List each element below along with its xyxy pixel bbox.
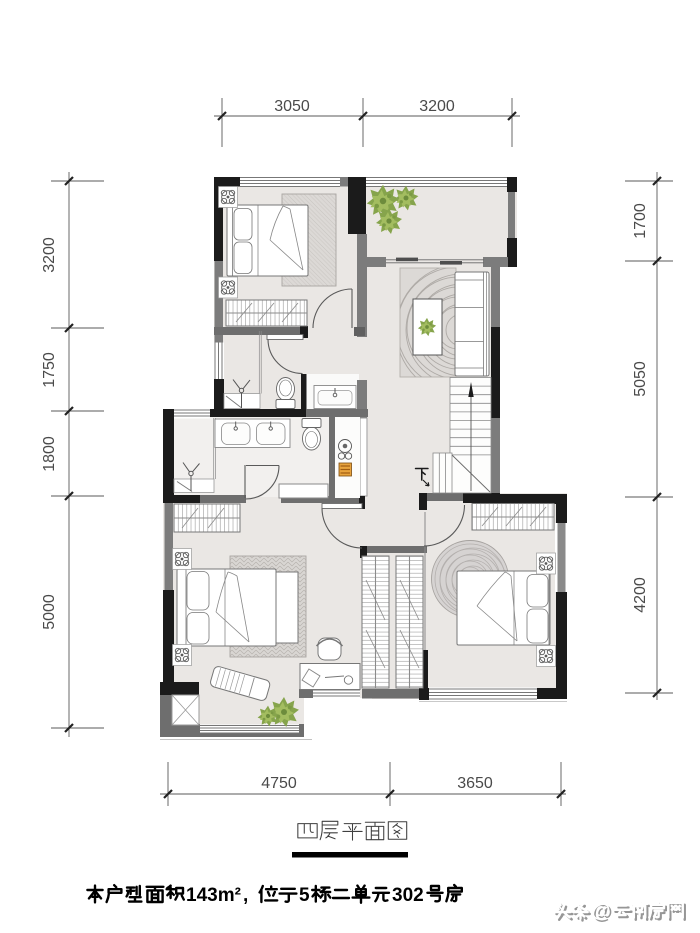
svg-text:3050: 3050 [274,98,310,115]
svg-text:3200: 3200 [41,237,58,273]
svg-text:3200: 3200 [419,98,455,115]
svg-text:3650: 3650 [457,775,493,792]
svg-text:143m²: 143m² [186,885,241,906]
svg-text:5050: 5050 [632,361,649,397]
svg-text:1750: 1750 [41,352,58,388]
svg-text:302: 302 [392,885,424,906]
svg-text:@: @ [591,900,611,922]
svg-text:5: 5 [299,885,310,906]
svg-text:,: , [243,885,248,906]
svg-text:4200: 4200 [632,577,649,613]
svg-text:1800: 1800 [41,436,58,472]
svg-text:4750: 4750 [261,775,297,792]
svg-text:5000: 5000 [41,594,58,630]
svg-text:1700: 1700 [632,203,649,239]
